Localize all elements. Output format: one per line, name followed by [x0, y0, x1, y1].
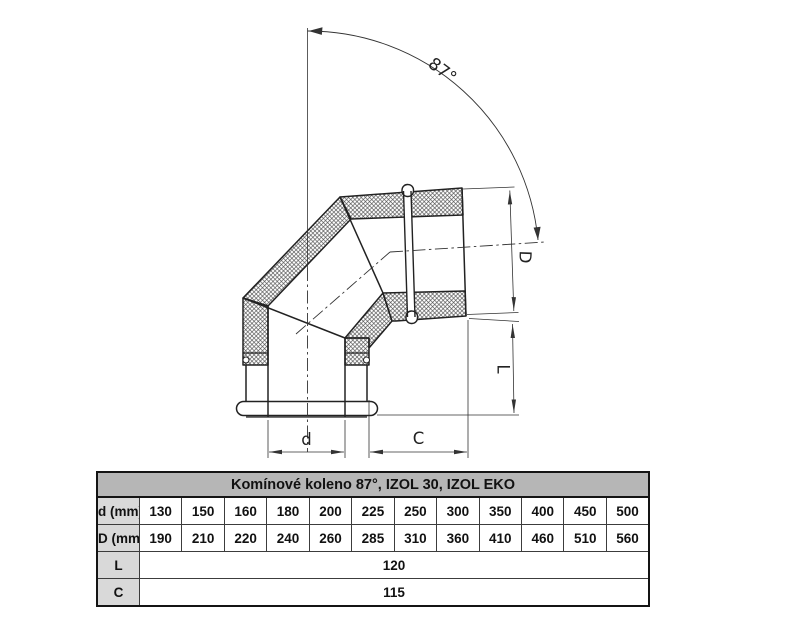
spec-cell: 400: [522, 497, 564, 525]
spec-value-l: 120: [139, 552, 649, 579]
spec-cell: 240: [267, 525, 309, 552]
spec-cell: 500: [606, 497, 649, 525]
centerlines: [296, 28, 545, 452]
spec-cell: 200: [309, 497, 351, 525]
spec-cell: 285: [352, 525, 394, 552]
spec-cell: 360: [437, 525, 479, 552]
spec-table: Komínové koleno 87°, IZOL 30, IZOL EKO d…: [96, 471, 650, 607]
spec-cell: 160: [224, 497, 266, 525]
dimension-l: L: [377, 319, 519, 416]
elbow-diagram-svg: 87° d C L: [0, 0, 797, 468]
spec-cell: 150: [182, 497, 224, 525]
row-label-l: L: [97, 552, 139, 579]
spec-cell: 210: [182, 525, 224, 552]
dimension-c: C: [369, 320, 468, 458]
spec-cell: 130: [139, 497, 181, 525]
table-title-row: Komínové koleno 87°, IZOL 30, IZOL EKO: [97, 472, 649, 497]
dim-label-d: d: [301, 430, 311, 449]
table-row-offset-c: C 115: [97, 579, 649, 607]
spec-cell: 350: [479, 497, 521, 525]
spec-cell: 510: [564, 525, 606, 552]
insulation-band-top-lower: [383, 291, 466, 321]
dim-label-outer-d: D: [515, 250, 534, 263]
spec-cell: 260: [309, 525, 351, 552]
spec-cell: 460: [522, 525, 564, 552]
table-row-inner-diameter: d (mm) vnitřní průměr: 130 150 160 180 2…: [97, 497, 649, 525]
spec-cell: 180: [267, 497, 309, 525]
insulation-band-bottom-left: [243, 298, 268, 365]
table-row-outer-diameter: D (mm) vnější průměr: 190 210 220 240 26…: [97, 525, 649, 552]
dim-label-c: C: [413, 429, 425, 448]
technical-drawing: 87° d C L: [0, 0, 797, 468]
spec-cell: 310: [394, 525, 436, 552]
spec-value-c: 115: [139, 579, 649, 607]
insulation-band-mid-upper: [243, 197, 351, 306]
spec-cell: 250: [394, 497, 436, 525]
spec-cell: 410: [479, 525, 521, 552]
spec-cell: 190: [139, 525, 181, 552]
table-title: Komínové koleno 87°, IZOL 30, IZOL EKO: [97, 472, 649, 497]
row-label-outer-d: D (mm) vnější průměr:: [97, 525, 139, 552]
row-label-c: C: [97, 579, 139, 607]
spec-cell: 220: [224, 525, 266, 552]
insulation-bands: [243, 188, 466, 365]
dimension-outer-d: D: [463, 187, 535, 315]
dimension-d: d: [268, 420, 345, 458]
spec-cell: 225: [352, 497, 394, 525]
socket-bead: [237, 402, 378, 416]
row-label-d: d (mm) vnitřní průměr:: [97, 497, 139, 525]
dim-label-l: L: [494, 364, 513, 374]
table-row-length-l: L 120: [97, 552, 649, 579]
page: 87° d C L: [0, 0, 797, 640]
spec-cell: 300: [437, 497, 479, 525]
spec-cell: 560: [606, 525, 649, 552]
spec-cell: 450: [564, 497, 606, 525]
